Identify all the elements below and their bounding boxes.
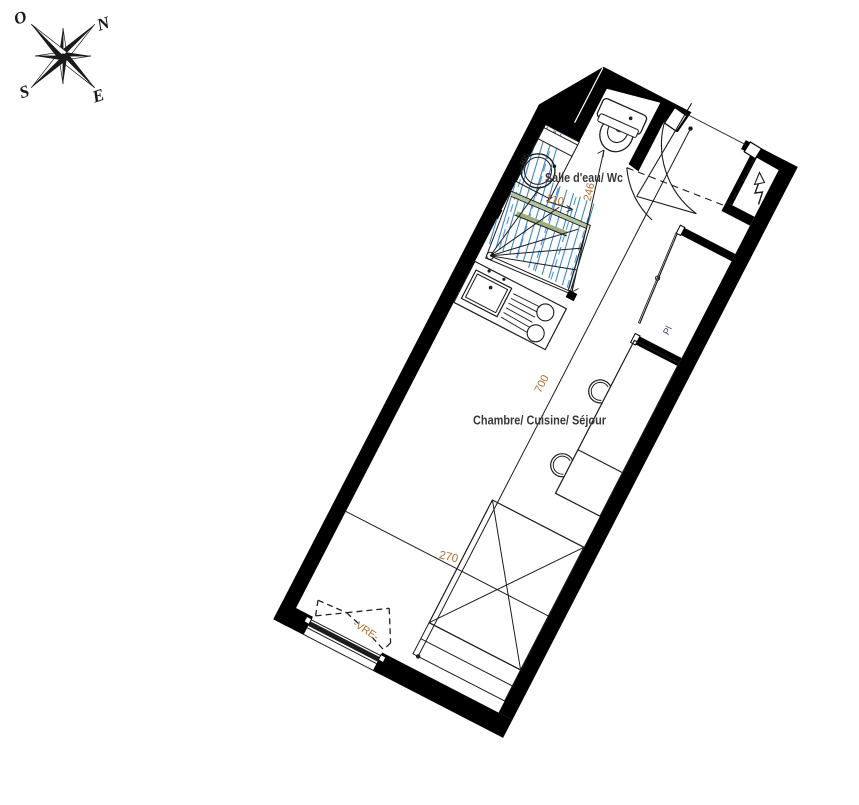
svg-text:Salle d'eau/ Wc: Salle d'eau/ Wc <box>545 171 623 185</box>
svg-text:Chambre/ Cuisine/ Séjour: Chambre/ Cuisine/ Séjour <box>473 414 606 428</box>
